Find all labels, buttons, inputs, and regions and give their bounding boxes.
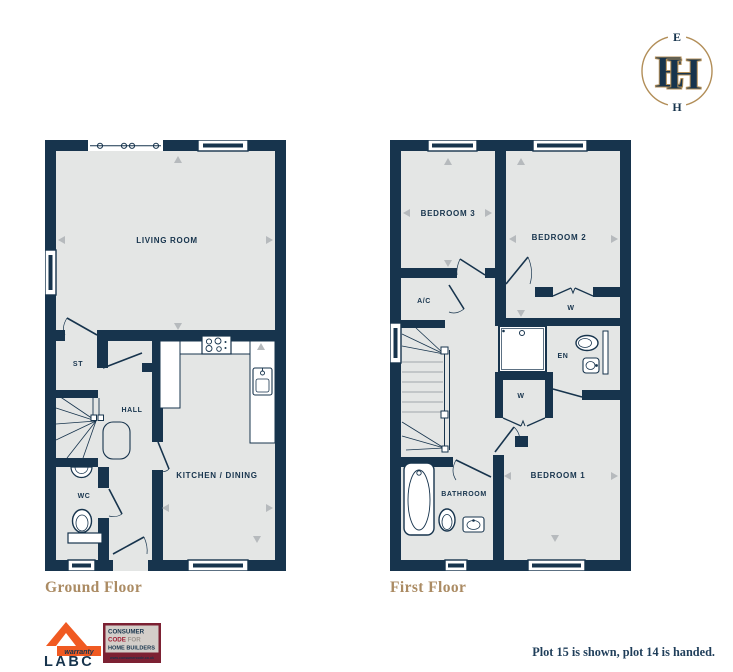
room-label-living-room: LIVING ROOM [136,236,197,245]
logo-monogram-icon: E H [655,46,702,99]
first-floor-plan: BEDROOM 3 BEDROOM 2 A/C W EN W BEDROOM 1… [390,140,631,571]
room-label-bedroom-2: BEDROOM 2 [532,233,587,242]
room-label-airing-cupboard: A/C [417,298,431,305]
room-label-bedroom-1: BEDROOM 1 [531,471,586,480]
room-label-hall: HALL [121,407,142,414]
bathroom-toilet-icon [439,509,455,531]
consumer-code-line2-rest: FOR [128,637,142,644]
ensuite-radiator-icon [603,331,608,374]
plot-note: Plot 15 is shown, plot 14 is handed. [532,645,715,660]
consumer-code-url: www.consumercode.co.uk [109,656,154,660]
svg-text:CODE FOR: CODE FOR [108,637,141,644]
developer-logo-icon: E H E H [637,19,717,114]
labc-brand-text: LABC [44,654,94,667]
room-label-wardrobe-bedroom-2: W [567,305,574,312]
room-label-bathroom: BATHROOM [441,491,487,498]
first-floor-title: First Floor [390,579,466,597]
room-label-wardrobe-landing: W [517,393,524,400]
ground-floor-title: Ground Floor [45,579,142,597]
kitchen-sink-icon [253,368,272,395]
room-label-store: ST [73,361,83,368]
room-label-bedroom-3: BEDROOM 3 [421,209,476,218]
floorplan-page: E H E H [0,0,733,672]
consumer-code-logo: CONSUMER CODE FOR HOME BUILDERS www.cons… [103,623,161,663]
consumer-code-line1: CONSUMER [108,629,145,636]
svg-text:H: H [666,48,702,99]
room-label-kitchen-dining: KITCHEN / DINING [176,471,257,480]
ground-french-door [88,140,163,151]
front-door-opening [113,560,148,571]
consumer-code-line3: HOME BUILDERS [108,646,155,652]
room-label-ensuite: EN [558,353,569,360]
logo-letter-e: E [673,30,681,44]
hob-icon [202,336,231,354]
shower-icon [499,326,546,372]
ground-floor-plan: LIVING ROOM ST HALL WC KITCHEN / DINING [45,140,286,571]
logo-letter-h: H [672,100,682,114]
ensuite-basin-icon [583,358,599,373]
bathroom-basin-icon [463,517,484,532]
consumer-code-line2-strong: CODE [108,637,126,644]
room-label-wc: WC [78,493,91,500]
labc-warranty-logo: warranty LABC [44,619,102,667]
ensuite-toilet-icon [576,336,598,351]
bath-icon [404,463,434,535]
